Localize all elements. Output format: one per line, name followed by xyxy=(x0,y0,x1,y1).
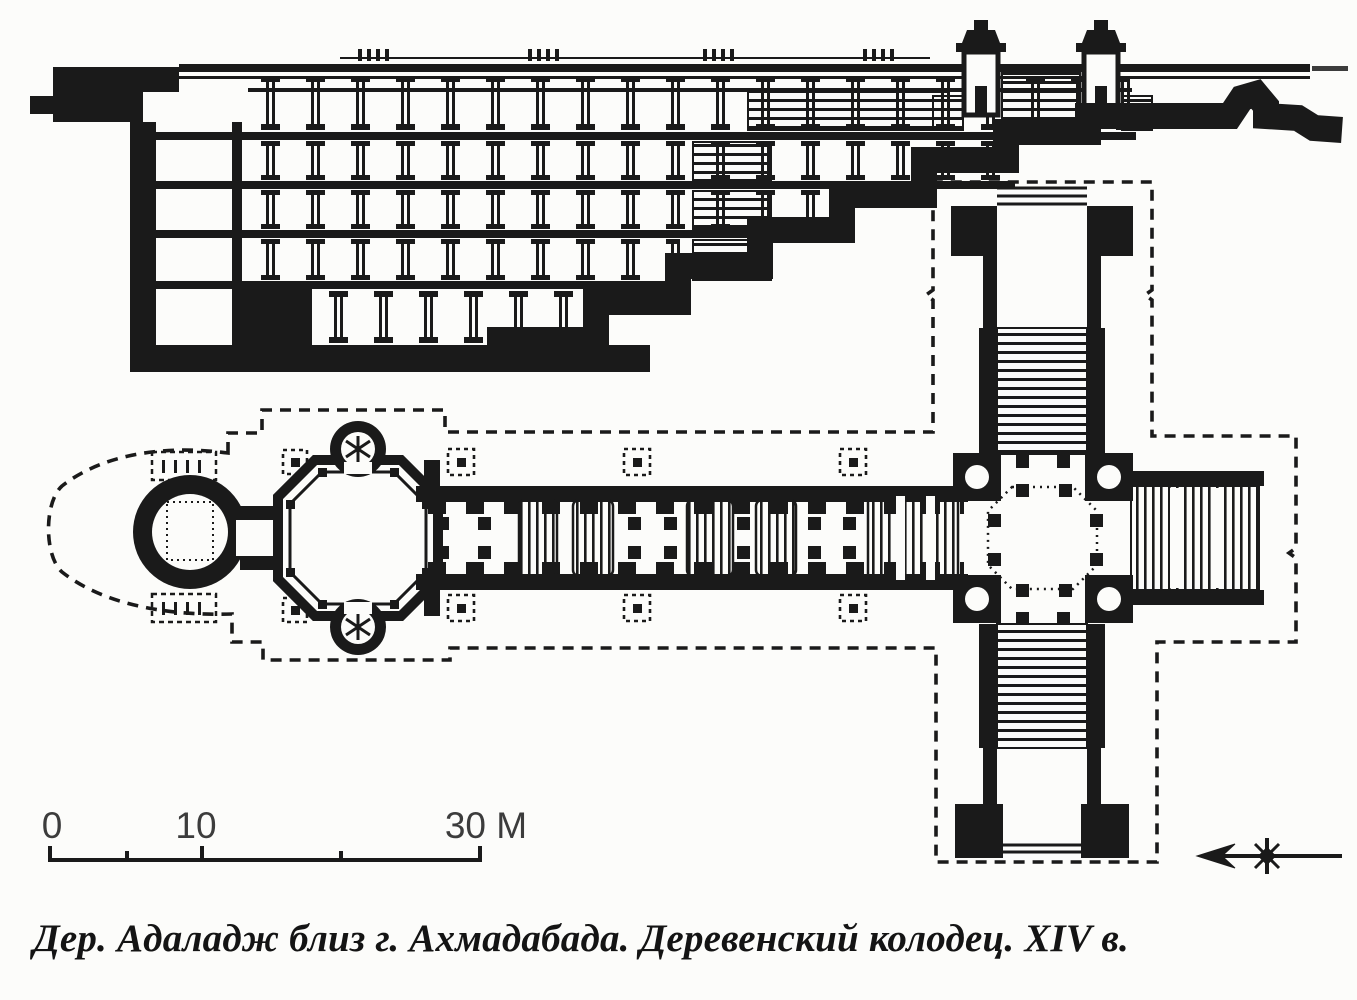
section-parapet-ticks xyxy=(358,49,894,61)
stepwell-figure: 0 10 30 M xyxy=(0,0,1357,1000)
plan-octagon-pavilion xyxy=(278,460,440,616)
entrance-kiosk-right xyxy=(1076,20,1126,115)
entrance-kiosk-left xyxy=(956,20,1006,115)
cross-east-arm xyxy=(1126,471,1264,605)
plan-gallery xyxy=(416,486,968,590)
north-arrow-icon xyxy=(1197,838,1342,874)
octagon-stair-bastion-top xyxy=(330,421,386,477)
scale-bar: 0 10 30 M xyxy=(42,805,527,862)
cross-south-arm xyxy=(955,624,1129,858)
plan-well-ring xyxy=(133,475,250,589)
cross-north-arm xyxy=(951,188,1133,456)
octagon-stair-bastion-bottom xyxy=(330,599,386,655)
scale-label-0: 0 xyxy=(42,805,63,846)
plan-cross-pavilion xyxy=(951,188,1264,858)
cross-court-octagon xyxy=(988,487,1097,589)
figure-caption: Дер. Адаладж близ г. Ахмадабада. Деревен… xyxy=(33,916,1323,961)
scale-label-30m: 30 M xyxy=(445,805,527,846)
cross-corner-masses xyxy=(953,453,1133,623)
scale-label-10: 10 xyxy=(175,805,216,846)
